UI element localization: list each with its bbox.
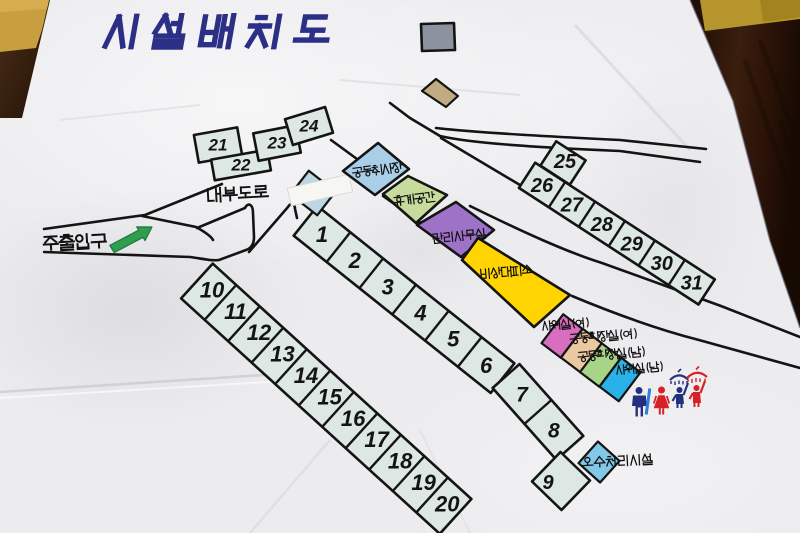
svg-text:27: 27: [560, 195, 584, 217]
svg-text:12: 12: [247, 320, 272, 345]
svg-text:17: 17: [364, 427, 390, 452]
svg-text:19: 19: [411, 470, 436, 495]
svg-text:7: 7: [516, 384, 529, 407]
svg-text:2: 2: [348, 248, 362, 273]
svg-text:9: 9: [542, 472, 554, 494]
svg-text:18: 18: [388, 449, 413, 474]
svg-text:13: 13: [270, 342, 294, 367]
svg-text:1: 1: [316, 222, 328, 247]
svg-text:26: 26: [530, 175, 554, 197]
svg-text:24: 24: [299, 117, 319, 136]
svg-text:15: 15: [317, 384, 342, 409]
svg-text:6: 6: [480, 353, 493, 378]
svg-text:23: 23: [267, 134, 287, 153]
svg-text:16: 16: [341, 406, 366, 431]
svg-text:30: 30: [651, 253, 673, 275]
svg-text:8: 8: [548, 420, 560, 443]
svg-text:10: 10: [200, 277, 225, 302]
svg-text:22: 22: [231, 156, 251, 175]
svg-text:28: 28: [590, 214, 614, 236]
svg-text:21: 21: [208, 136, 228, 155]
svg-text:20: 20: [434, 491, 460, 516]
svg-text:14: 14: [294, 363, 318, 388]
svg-text:3: 3: [381, 274, 393, 299]
svg-text:31: 31: [681, 272, 703, 294]
svg-text:25: 25: [553, 151, 577, 173]
svg-text:5: 5: [447, 327, 460, 352]
svg-text:11: 11: [224, 299, 247, 324]
svg-text:4: 4: [413, 301, 426, 326]
svg-text:29: 29: [620, 234, 644, 256]
